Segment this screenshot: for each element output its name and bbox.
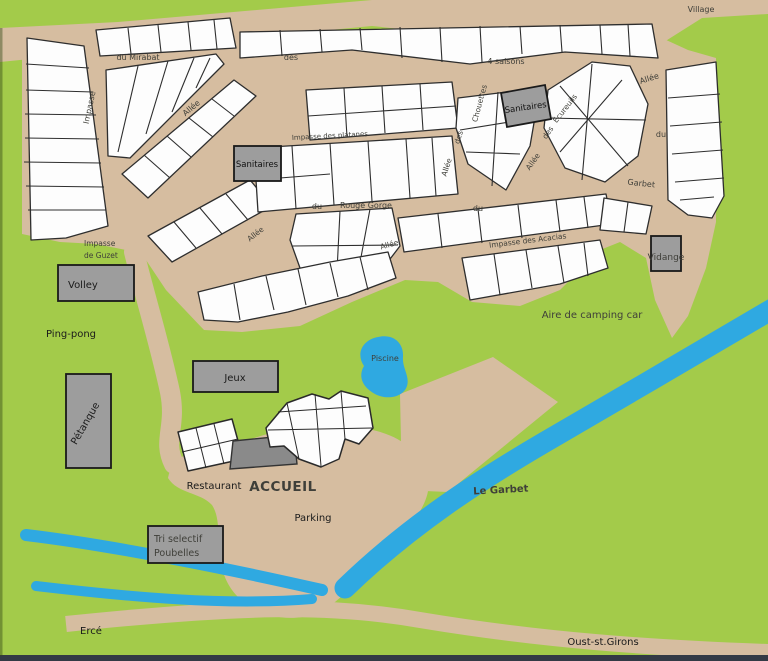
map-canvas: Village du Mirabat Impasse Allée des 4 s… — [0, 0, 768, 661]
aire-camping-car-label: Aire de camping car — [542, 310, 644, 321]
bottom-edge-strip — [0, 655, 768, 661]
pool — [360, 336, 407, 397]
restaurant-label: Restaurant — [187, 481, 242, 492]
pitches-right-column — [666, 62, 724, 218]
street-label-impasse-guzet-2: de Guzet — [84, 251, 118, 260]
street-label-du-center: du — [473, 204, 483, 213]
volley-label: Volley — [68, 280, 98, 291]
street-label-4-saisons: 4 saisons — [487, 57, 524, 66]
tri-selectif-label-1: Tri selectif — [153, 534, 203, 545]
parking-label: Parking — [294, 513, 331, 524]
piscine-label: Piscine — [371, 354, 399, 363]
tri-selectif-label-2: Poubelles — [154, 548, 199, 559]
jeux-label: Jeux — [223, 373, 245, 384]
street-label-impasse-guzet-1: Impasse — [84, 239, 116, 248]
campsite-map: Village du Mirabat Impasse Allée des 4 s… — [0, 0, 768, 661]
left-edge-line — [0, 28, 3, 656]
street-label-rouge-gorge: Rouge Gorge — [340, 201, 392, 210]
ping-pong-label: Ping-pong — [46, 329, 96, 340]
accueil-label: ACCUEIL — [249, 479, 317, 495]
street-label-village: Village — [688, 5, 715, 14]
vidange-label: Vidange — [648, 253, 685, 263]
street-label-rouge-gorge-du: du — [312, 202, 322, 211]
street-label-garbet-du: du — [656, 130, 666, 139]
sanitaires-mid-label: Sanitaires — [236, 160, 279, 170]
street-label-des: des — [284, 53, 298, 62]
road-label-erce: Ercé — [80, 625, 102, 637]
road-label-oust: Oust-st.Girons — [567, 637, 638, 648]
street-label-du-mirabat: du Mirabat — [116, 53, 159, 62]
